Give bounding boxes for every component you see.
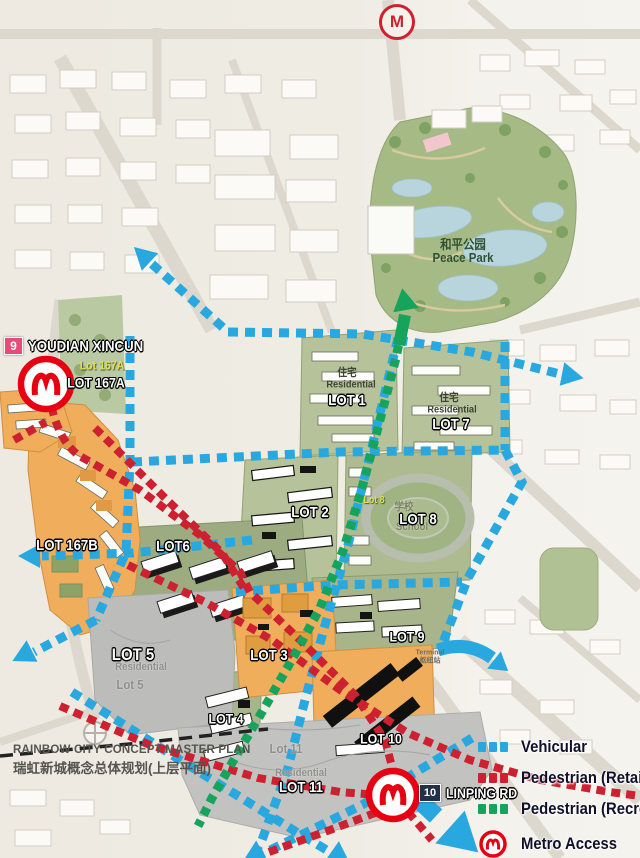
lot-10-label: LOT 10: [360, 732, 402, 747]
lot-167a-label: LOT 167A: [67, 376, 125, 391]
vehicular-dash-icon: [478, 742, 512, 752]
lot-4-label: LOT 4: [209, 712, 244, 727]
lot-11-label: LOT 11: [279, 780, 323, 796]
metro-access-icon-9: [21, 359, 71, 409]
legend-row-recreation: Pedestrian (Recreation): [478, 798, 640, 820]
lot-9-label: LOT 9: [390, 630, 425, 645]
lot-3-label: LOT 3: [250, 648, 287, 664]
peace-park-label-en: Peace Park: [432, 251, 493, 265]
lot-5-small-label: Lot 5: [116, 678, 143, 692]
terminal-label: Terminal 枢纽站: [416, 649, 445, 664]
legend-row-retail: Pedestrian (Retail): [478, 767, 640, 789]
metro-station-marker: M: [379, 4, 415, 40]
terminal-en: Terminal: [416, 649, 445, 657]
station-10-badge: 10: [419, 784, 441, 802]
lot-167a-small-label: Lot 167A: [80, 360, 125, 373]
legend-label-retail: Pedestrian (Retail): [521, 769, 640, 788]
station-9: 9 YOUDIAN XINCUN: [4, 337, 159, 355]
plan-title-en: RAINBOW CITY CONCEPT MASTER PLAN: [13, 744, 250, 756]
lot-167b-label: LOT 167B: [36, 538, 98, 554]
lot-1-en: Residential: [326, 379, 375, 390]
park-west-compound: [368, 206, 414, 254]
plan-title: RAINBOW CITY CONCEPT MASTER PLAN 瑞虹新城概念总…: [13, 744, 250, 777]
arrow-east: [560, 362, 586, 390]
lot-2-label: LOT 2: [291, 505, 328, 521]
lot-7-label: LOT 7: [432, 417, 469, 433]
lot-8-small-label: Lot 8: [363, 496, 384, 507]
map-canvas: [0, 0, 640, 858]
legend-row-vehicular: Vehicular: [478, 736, 640, 758]
recreation-dash-icon: [478, 804, 512, 814]
station-9-name: YOUDIAN XINCUN: [28, 338, 143, 355]
legend-label-metro: Metro Access: [521, 835, 617, 854]
lot-5-en: Residential: [115, 662, 167, 674]
legend: Vehicular Pedestrian (Retail) Pedestrian…: [478, 736, 640, 858]
lot-11-en: Residential: [275, 768, 327, 780]
terminal-zh: 枢纽站: [416, 657, 445, 665]
legend-label-vehicular: Vehicular: [521, 738, 587, 757]
metro-access-icon-10: [369, 771, 417, 819]
lot-6-label: LOT6: [156, 539, 190, 555]
lot-1-label: LOT 1: [328, 393, 365, 409]
legend-row-metro: Metro Access: [478, 829, 640, 858]
metro-access-icon: [478, 829, 512, 858]
arrow-south-right: [325, 841, 357, 858]
lot-11-small-label: Lot 11: [269, 742, 302, 756]
arrow-south-left: [237, 841, 268, 858]
station-9-badge: 9: [4, 337, 23, 355]
retail-dash-icon: [478, 773, 512, 783]
lot-7-en: Residential: [427, 404, 476, 415]
lot-8-label: LOT 8: [399, 512, 436, 528]
east-green-field: [540, 548, 598, 630]
arrow-southwest: [7, 640, 37, 671]
concept-master-plan-map: M 9 YOUDIAN XINCUN Lot 167A LOT 167A 10 …: [0, 0, 640, 858]
plan-title-zh: 瑞虹新城概念总体规划(上层平面): [13, 757, 250, 777]
legend-label-recreation: Pedestrian (Recreation): [521, 800, 640, 819]
